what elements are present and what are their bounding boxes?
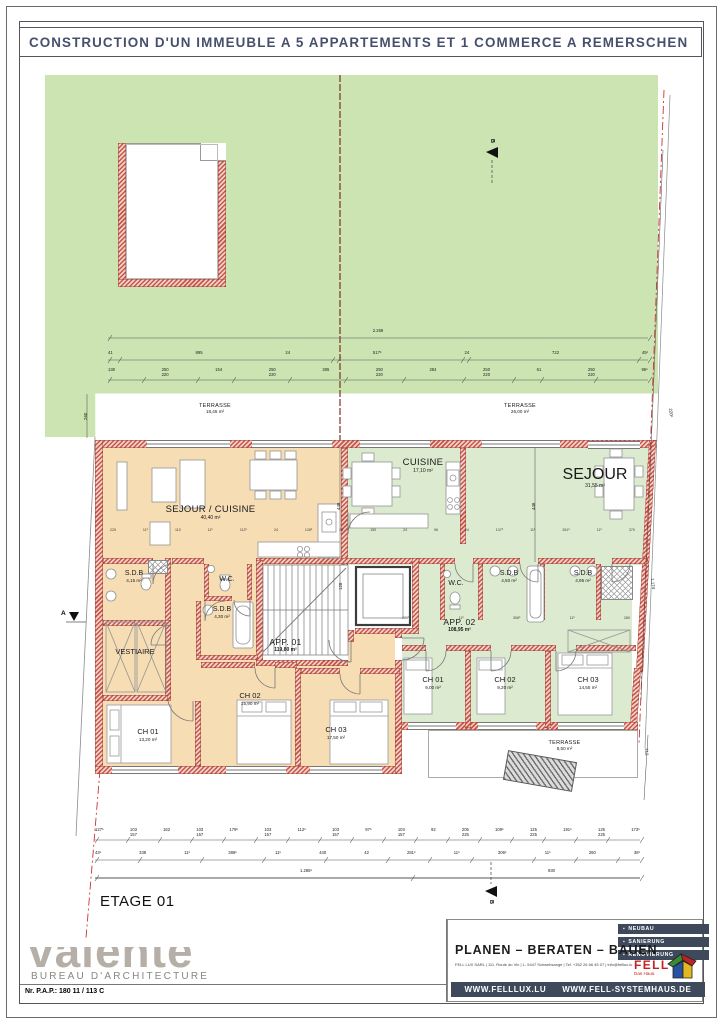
list-value: 103 157 [398,828,405,837]
list-value: 24 [465,351,470,356]
room-label-ch3-app2: CH 03 14,55 m² [552,676,624,690]
list-value: 11⁵ [570,617,575,621]
list-value: 11⁵ [208,529,213,533]
dim-bottom-row2: 43¹33811⁵388⁵11⁵44042281⁵11⁵306⁵11⁵26038… [95,851,640,856]
drawing-title: CONSTRUCTION D'UN IMMEUBLE A 5 APPARTEME… [20,35,688,50]
room-label-app2: APP. 02 108,95 m² [422,618,497,634]
section-marker-b-bottom: B [488,900,494,904]
wall-segment [440,564,445,620]
architect-subtitle: BUREAU D'ARCHITECTURE [31,971,209,982]
wall-segment [576,645,636,651]
wall-segment [295,668,301,766]
fell-brand: FELL [634,958,670,972]
list-value: 24 [465,529,469,533]
wall-segment [545,651,551,728]
list-value: 11⁵ [545,851,551,856]
list-value: 125 225 [598,828,605,837]
wall-segment [341,448,348,565]
list-value: WWW.FELL-SYSTEMHAUS.DE [562,985,691,994]
wall-segment [465,651,471,728]
list-value: 41 [108,351,113,356]
list-value: 42 [364,851,369,856]
list-value: 103 157 [196,828,203,837]
room-label-sdb2-app1: S.D.B 4,30 m² [196,606,248,619]
core-hall-fill [263,565,412,630]
wall-segment [103,620,171,626]
annex-inner-line [126,144,218,279]
list-value: 43¹ [95,851,101,856]
list-value: 11⁵ [275,851,281,856]
room-label-ch2-app1: CH 02 15,90 m² [214,692,286,706]
room-label-wc-app2: W.C. [436,580,476,588]
dim-top-total: 2.269 [108,329,648,334]
list-value: 261⁵ [562,529,570,533]
wall-segment [612,558,648,564]
section-marker-b-top: B [489,139,495,143]
window [558,722,624,730]
room-label-sejour: SEJOUR 31,55 m² [550,466,640,490]
dim-interior-row1: 22511⁵11011⁵112⁵24128⁵24150249624137⁵11⁵… [110,529,635,533]
room-label-ch1-app2: CH 01 9,00 m² [402,676,464,690]
list-value: 285 [322,368,329,373]
wall-segment [402,645,426,651]
wall-segment [195,701,201,766]
list-value: 338 [139,851,146,856]
list-value: 109⁵ [495,828,504,833]
room-label-terrasse-left: TERRASSE 18,45 m² [175,403,255,415]
window [478,722,536,730]
list-value: 11⁵ [530,529,535,533]
list-value: 154 [215,368,222,373]
room-label-terrasse-right: TERRASSE 26,00 m² [480,403,560,415]
room-label-wc-app1: W.C. [206,576,248,584]
architect-logo: valente [28,947,248,974]
list-value: 24 [274,529,278,533]
wall-segment [95,440,103,774]
list-value: 97⁵ [365,828,371,833]
wall-segment [118,279,226,287]
list-value: 722 [552,351,559,356]
window [147,440,230,448]
wall-segment [196,655,258,660]
list-value: 517⁵ [373,351,382,356]
company-slogan: PLANEN – BERATEN – BAUEN [455,943,657,957]
company-info: FELL LUX SARL | 111, Route du Vin | L- 5… [455,962,635,967]
wall-segment [360,668,400,674]
dim-vertical: 448 [531,503,536,510]
list-value: 370 [629,529,635,533]
list-value: 125 225 [530,828,537,837]
dim-vertical: 212 [644,748,649,756]
list-value: 250 220 [376,368,383,377]
list-value: 440 [319,851,326,856]
room-label-sdb1-app2: S.D.B 4,50 m² [484,570,534,583]
dim-vertical: 220⁵ [668,408,674,418]
wall-segment [103,695,168,701]
dim-bottom-total-2: 930 [548,869,555,874]
dim-top-row3: 138250 220154250 220285250 220284250 220… [108,368,648,377]
room-label-ch3-app1: CH 03 17,50 m² [300,726,372,740]
company-websites: WWW.FELLLUX.LUWWW.FELL-SYSTEMHAUS.DE [451,982,705,997]
room-label-app1: APP. 01 119,80 m² [248,638,323,654]
room-label-terrasse-bottom: TERRASSE 8,50 m² [522,740,607,752]
list-value: 92 [431,828,436,833]
list-value: 225 [110,529,116,533]
list-value: 162 [163,828,170,833]
wall-segment [540,564,545,620]
list-value: 24 [285,351,290,356]
window [310,766,382,774]
list-value: 205 225 [462,828,469,837]
fell-brand-sub: Das Haus. [634,971,655,976]
list-value: 103 157 [264,828,271,837]
wall-segment [256,660,348,666]
architect-line [20,984,446,985]
window [252,440,332,448]
list-value: 281⁵ [407,851,416,856]
wall-segment [172,558,204,564]
window [112,766,178,774]
wall-segment [355,628,419,634]
wall-segment [275,662,297,668]
room-label-ch2-app2: CH 02 9,20 m² [474,676,536,690]
wall-segment [395,660,402,774]
dim-vertical: 128 [338,583,343,590]
list-value: 24 [403,529,407,533]
wall-segment [395,628,402,638]
drawing-title-box: CONSTRUCTION D'UN IMMEUBLE A 5 APPARTEME… [19,27,702,57]
list-value: 38¹ [634,851,640,856]
wall-segment [538,558,595,564]
wall-segment [348,630,354,642]
fell-house-icon: ® [666,952,702,980]
list-value: WWW.FELLLUX.LU [465,985,547,994]
list-value: 96⁵ [641,368,647,373]
list-value: 250 220 [162,368,169,377]
drawing-sheet: CONSTRUCTION D'UN IMMEUBLE A 5 APPARTEME… [0,0,723,1024]
list-value: 260 [624,617,630,621]
list-value: 24 [339,529,343,533]
list-value: 250 220 [483,368,490,377]
list-value: 112⁵ [298,828,306,833]
list-value: 11⁵ [184,851,190,856]
wall-segment [256,558,419,564]
window [588,441,640,449]
list-value: 110 [175,529,181,533]
list-value: 284 [429,368,436,373]
list-value: 306⁵ [513,617,521,621]
list-value: 388⁵ [228,851,237,856]
wall-segment [301,668,340,674]
room-label-sdb2-app2: S.D.B 4,95 m² [558,570,608,583]
wall-segment [118,143,126,287]
list-value: 250 220 [588,368,595,377]
list-value: 103 157 [332,828,339,837]
room-label-sejour-cuisine: SEJOUR / CUISINE 40,40 m² [158,505,263,522]
list-value: 45² [642,351,648,356]
wall-segment [103,558,153,564]
list-value: 11⁵ [597,529,602,533]
wall-segment [201,662,255,668]
svg-text:®: ® [697,953,700,958]
room-label-cuisine: CUISINE 17,10 m² [388,458,458,475]
dim-bottom-total-1: 1.285⁵ [300,869,312,874]
dim-vertical: 260 [83,413,88,420]
list-value: 103 157 [130,828,137,837]
room-label-vestiaire: VESTIAIRE [96,648,174,657]
window [360,440,430,448]
wall-segment [218,161,226,287]
list-value: 61 [537,368,542,373]
list-value: 179⁵ [229,828,238,833]
list-value: 260 [589,851,596,856]
wall-segment [419,558,455,564]
wall-segment [165,620,171,701]
window [482,440,560,448]
list-value: 96 [434,529,438,533]
wall-segment [478,564,483,620]
list-value: 127⁵ [95,828,104,833]
list-value: 191⁵ [563,828,572,833]
room-label-ch1-app1: CH 01 13,20 m² [112,728,184,742]
wall-segment [204,596,232,601]
wall-segment [412,558,419,634]
list-value: 150 [370,529,376,533]
list-value: 306⁵ [498,851,507,856]
list-value: 289⁵ [402,617,410,621]
annex-building [118,143,226,287]
dim-top-row2: 4189524517⁵2472245² [108,351,648,356]
list-value: 138 [108,368,115,373]
floor-label: ETAGE 01 [100,893,175,910]
list-value: 128⁵ [305,529,313,533]
window [408,722,456,730]
list-value: 895 [196,351,203,356]
section-marker-a: A [61,610,66,617]
list-value: 11⁵ [454,851,460,856]
list-value: NEUBAU [618,924,709,934]
room-label-sdb1-app1: S.D.B 4,15 m² [108,570,160,583]
list-value: 250 220 [269,368,276,377]
list-value: 173⁵ [631,828,640,833]
list-value: 112⁵ [240,529,247,533]
architect-ref: Nr. P.A.P.: 180 11 / 113 C [25,988,104,995]
list-value: 137⁵ [496,529,504,533]
dim-vertical: 448 [336,503,341,510]
list-value: 11⁵ [143,529,148,533]
dim-vertical: 1.174 [650,578,656,589]
window [226,766,286,774]
dim-bottom-row1: 127⁵103 157162103 157179⁵103 157112⁵103 … [95,828,640,837]
